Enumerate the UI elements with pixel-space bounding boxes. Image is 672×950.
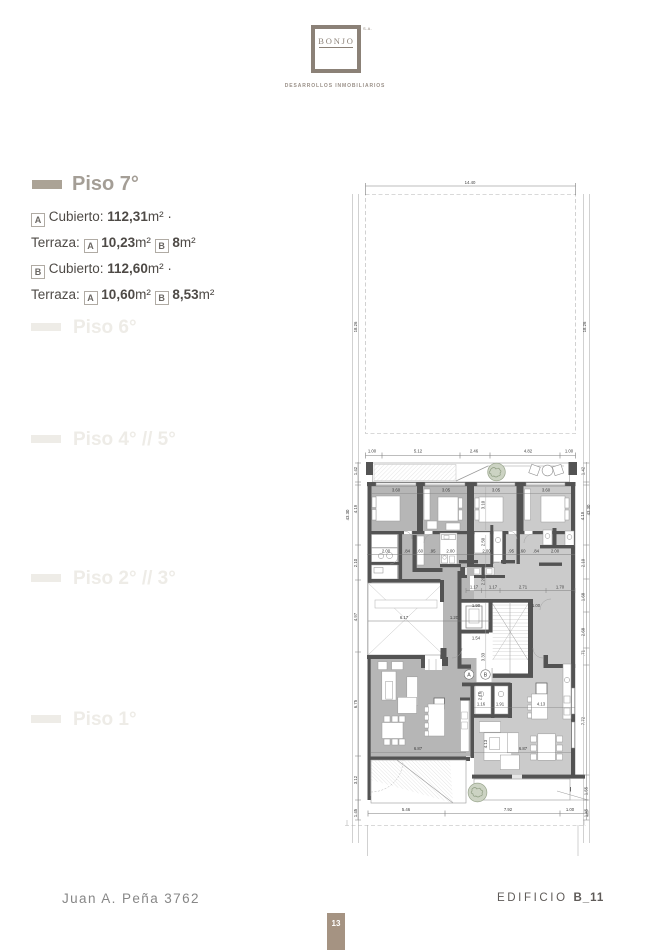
svg-text:2.68: 2.68 xyxy=(580,627,585,636)
svg-text:1.42: 1.42 xyxy=(353,466,358,475)
svg-text:6.17: 6.17 xyxy=(400,615,409,620)
svg-text:3.60: 3.60 xyxy=(392,488,401,493)
svg-text:7.72: 7.72 xyxy=(580,716,585,725)
svg-text:2.46: 2.46 xyxy=(470,449,479,454)
svg-text:4.13: 4.13 xyxy=(537,702,546,707)
svg-text:1.55: 1.55 xyxy=(584,786,589,795)
svg-text:B: B xyxy=(484,672,488,678)
svg-text:6.75: 6.75 xyxy=(353,699,358,708)
svg-text:A: A xyxy=(467,672,471,678)
svg-text:1.00: 1.00 xyxy=(368,449,377,454)
svg-text:3.10: 3.10 xyxy=(480,500,485,509)
svg-text:5.12: 5.12 xyxy=(414,449,423,454)
svg-text:1.00: 1.00 xyxy=(566,807,575,812)
svg-text:.95: .95 xyxy=(430,549,437,554)
svg-text:1.90: 1.90 xyxy=(472,603,481,608)
svg-text:43.30: 43.30 xyxy=(586,504,591,515)
svg-text:1.91: 1.91 xyxy=(496,702,505,707)
svg-text:2.10: 2.10 xyxy=(580,558,585,567)
svg-text:2.00: 2.00 xyxy=(382,549,391,554)
svg-text:1.16: 1.16 xyxy=(477,702,486,707)
svg-text:2.71: 2.71 xyxy=(519,585,528,590)
svg-text:1.00: 1.00 xyxy=(532,603,541,608)
svg-text:4.97: 4.97 xyxy=(353,612,358,621)
svg-text:3.05: 3.05 xyxy=(492,488,501,493)
svg-text:1.54: 1.54 xyxy=(472,636,481,641)
svg-text:2.16: 2.16 xyxy=(477,691,482,700)
svg-text:.71: .71 xyxy=(580,649,585,656)
svg-text:2.20: 2.20 xyxy=(480,576,485,585)
svg-text:3.05: 3.05 xyxy=(442,488,451,493)
svg-text:2.00: 2.00 xyxy=(446,549,455,554)
svg-text:1.17: 1.17 xyxy=(489,585,498,590)
svg-text:1.68: 1.68 xyxy=(580,592,585,601)
svg-text:.60: .60 xyxy=(417,549,424,554)
svg-text:1.20: 1.20 xyxy=(450,615,459,620)
svg-text:2.00: 2.00 xyxy=(551,549,560,554)
svg-text:1.42: 1.42 xyxy=(580,466,585,475)
svg-text:3.33: 3.33 xyxy=(480,652,485,661)
svg-text:4.82: 4.82 xyxy=(524,449,533,454)
svg-text:6.87: 6.87 xyxy=(519,746,528,751)
svg-text:18.26: 18.26 xyxy=(353,321,358,332)
svg-text:2.00: 2.00 xyxy=(482,549,491,554)
svg-text:1.17: 1.17 xyxy=(470,585,479,590)
svg-text:4.19: 4.19 xyxy=(353,504,358,513)
svg-text:.84: .84 xyxy=(404,549,411,554)
svg-text:3.12: 3.12 xyxy=(353,775,358,784)
svg-text:2.50: 2.50 xyxy=(480,537,485,546)
svg-text:7.92: 7.92 xyxy=(504,807,513,812)
svg-text:1.00: 1.00 xyxy=(565,449,574,454)
svg-text:18.26: 18.26 xyxy=(582,321,587,332)
svg-text:6.87: 6.87 xyxy=(414,746,423,751)
svg-text:14.40: 14.40 xyxy=(465,180,476,185)
svg-text:.60: .60 xyxy=(520,549,527,554)
svg-text:4.19: 4.19 xyxy=(580,511,585,520)
svg-text:5.46: 5.46 xyxy=(402,807,411,812)
svg-text:2.10: 2.10 xyxy=(353,558,358,567)
svg-text:3.60: 3.60 xyxy=(542,488,551,493)
svg-text:.95: .95 xyxy=(508,549,515,554)
svg-text:1.45: 1.45 xyxy=(353,808,358,817)
svg-text:43.30: 43.30 xyxy=(345,509,350,520)
svg-text:.84: .84 xyxy=(533,549,540,554)
svg-text:1.70: 1.70 xyxy=(556,585,565,590)
svg-text:4.13: 4.13 xyxy=(483,739,488,748)
